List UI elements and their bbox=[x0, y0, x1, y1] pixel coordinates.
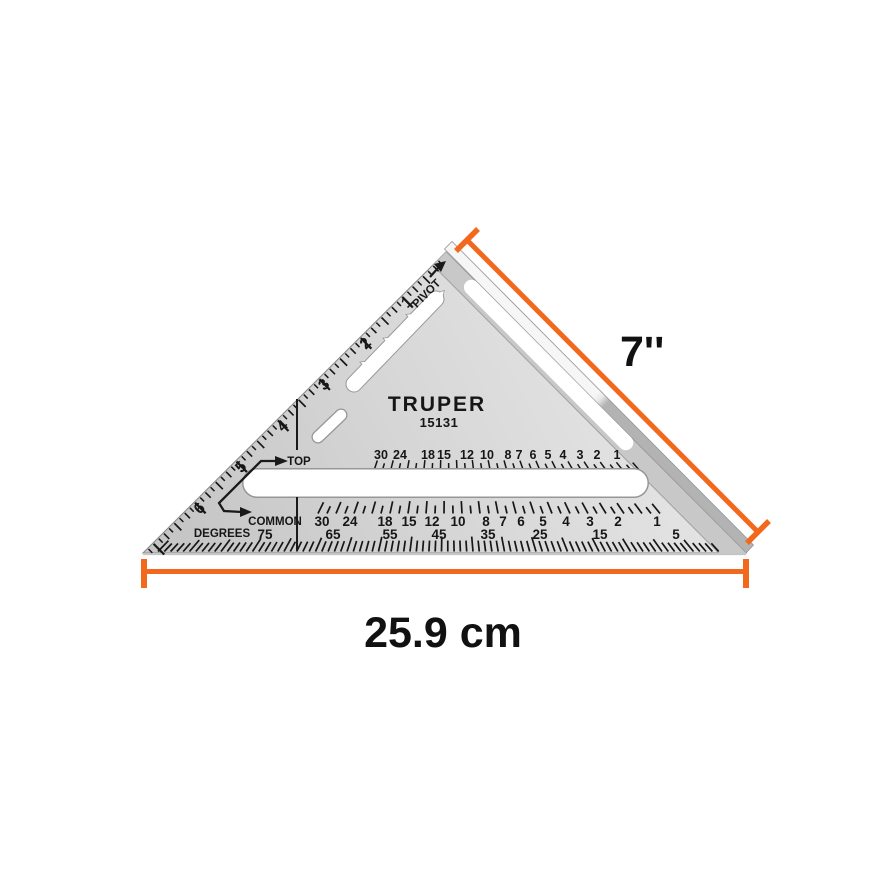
scale-number: 6 bbox=[530, 448, 537, 462]
scale-number: 7 bbox=[516, 448, 523, 462]
product-dimension-figure: TRUPER 15131 PIVOT TOP COMMON DEGREES 12… bbox=[0, 0, 885, 885]
tick-mark bbox=[461, 501, 462, 513]
scale-number: 1 bbox=[653, 514, 661, 529]
scale-number: 24 bbox=[393, 448, 407, 462]
tick-mark bbox=[429, 541, 430, 552]
scale-number: 8 bbox=[505, 448, 512, 462]
tick-mark bbox=[416, 541, 417, 552]
tick-mark bbox=[426, 501, 427, 513]
scale-number: 10 bbox=[450, 514, 465, 529]
scale-number: 10 bbox=[480, 448, 494, 462]
scale-number: 3 bbox=[577, 448, 584, 462]
scale-number: 15 bbox=[437, 448, 451, 462]
tick-mark bbox=[417, 506, 418, 514]
scale-number: 7 bbox=[499, 514, 507, 529]
dimension-line-base bbox=[144, 559, 746, 588]
scale-number: 65 bbox=[325, 527, 341, 542]
scale-number: 45 bbox=[431, 527, 447, 542]
scale-number: 35 bbox=[480, 527, 496, 542]
scale-number: 75 bbox=[257, 527, 273, 542]
scale-number: 55 bbox=[382, 527, 398, 542]
base-dimension-label: 25.9 cm bbox=[364, 609, 522, 657]
scale-number: 6 bbox=[517, 514, 525, 529]
scale-number: 5 bbox=[672, 527, 680, 542]
scale-number: 4 bbox=[562, 514, 570, 529]
scale-number: 15 bbox=[592, 527, 608, 542]
model-number-text: 15131 bbox=[420, 415, 459, 430]
scale-number: 5 bbox=[545, 448, 552, 462]
tick-mark bbox=[423, 541, 424, 552]
degrees-label: DEGREES bbox=[194, 528, 251, 540]
scale-number: 15 bbox=[401, 514, 417, 529]
scale-number: 30 bbox=[374, 448, 388, 462]
top-label: TOP bbox=[287, 456, 311, 468]
tick-mark bbox=[470, 506, 471, 514]
scale-number: 24 bbox=[342, 514, 358, 529]
tick-mark bbox=[478, 541, 479, 552]
scale-number: 2 bbox=[614, 514, 622, 529]
scale-number: 4 bbox=[560, 448, 567, 462]
hypotenuse-dimension-label: 7'' bbox=[620, 328, 664, 376]
scale-number: 25 bbox=[532, 527, 548, 542]
scale-number: 1 bbox=[614, 448, 621, 462]
tick-mark bbox=[466, 541, 467, 552]
common-label: COMMON bbox=[248, 516, 302, 528]
brand-text: TRUPER bbox=[388, 393, 486, 416]
scale-number: 12 bbox=[460, 448, 474, 462]
scale-number: 2 bbox=[594, 448, 601, 462]
speed-square-image: TRUPER 15131 PIVOT TOP COMMON DEGREES 12… bbox=[0, 0, 885, 885]
scale-number: 18 bbox=[421, 448, 435, 462]
